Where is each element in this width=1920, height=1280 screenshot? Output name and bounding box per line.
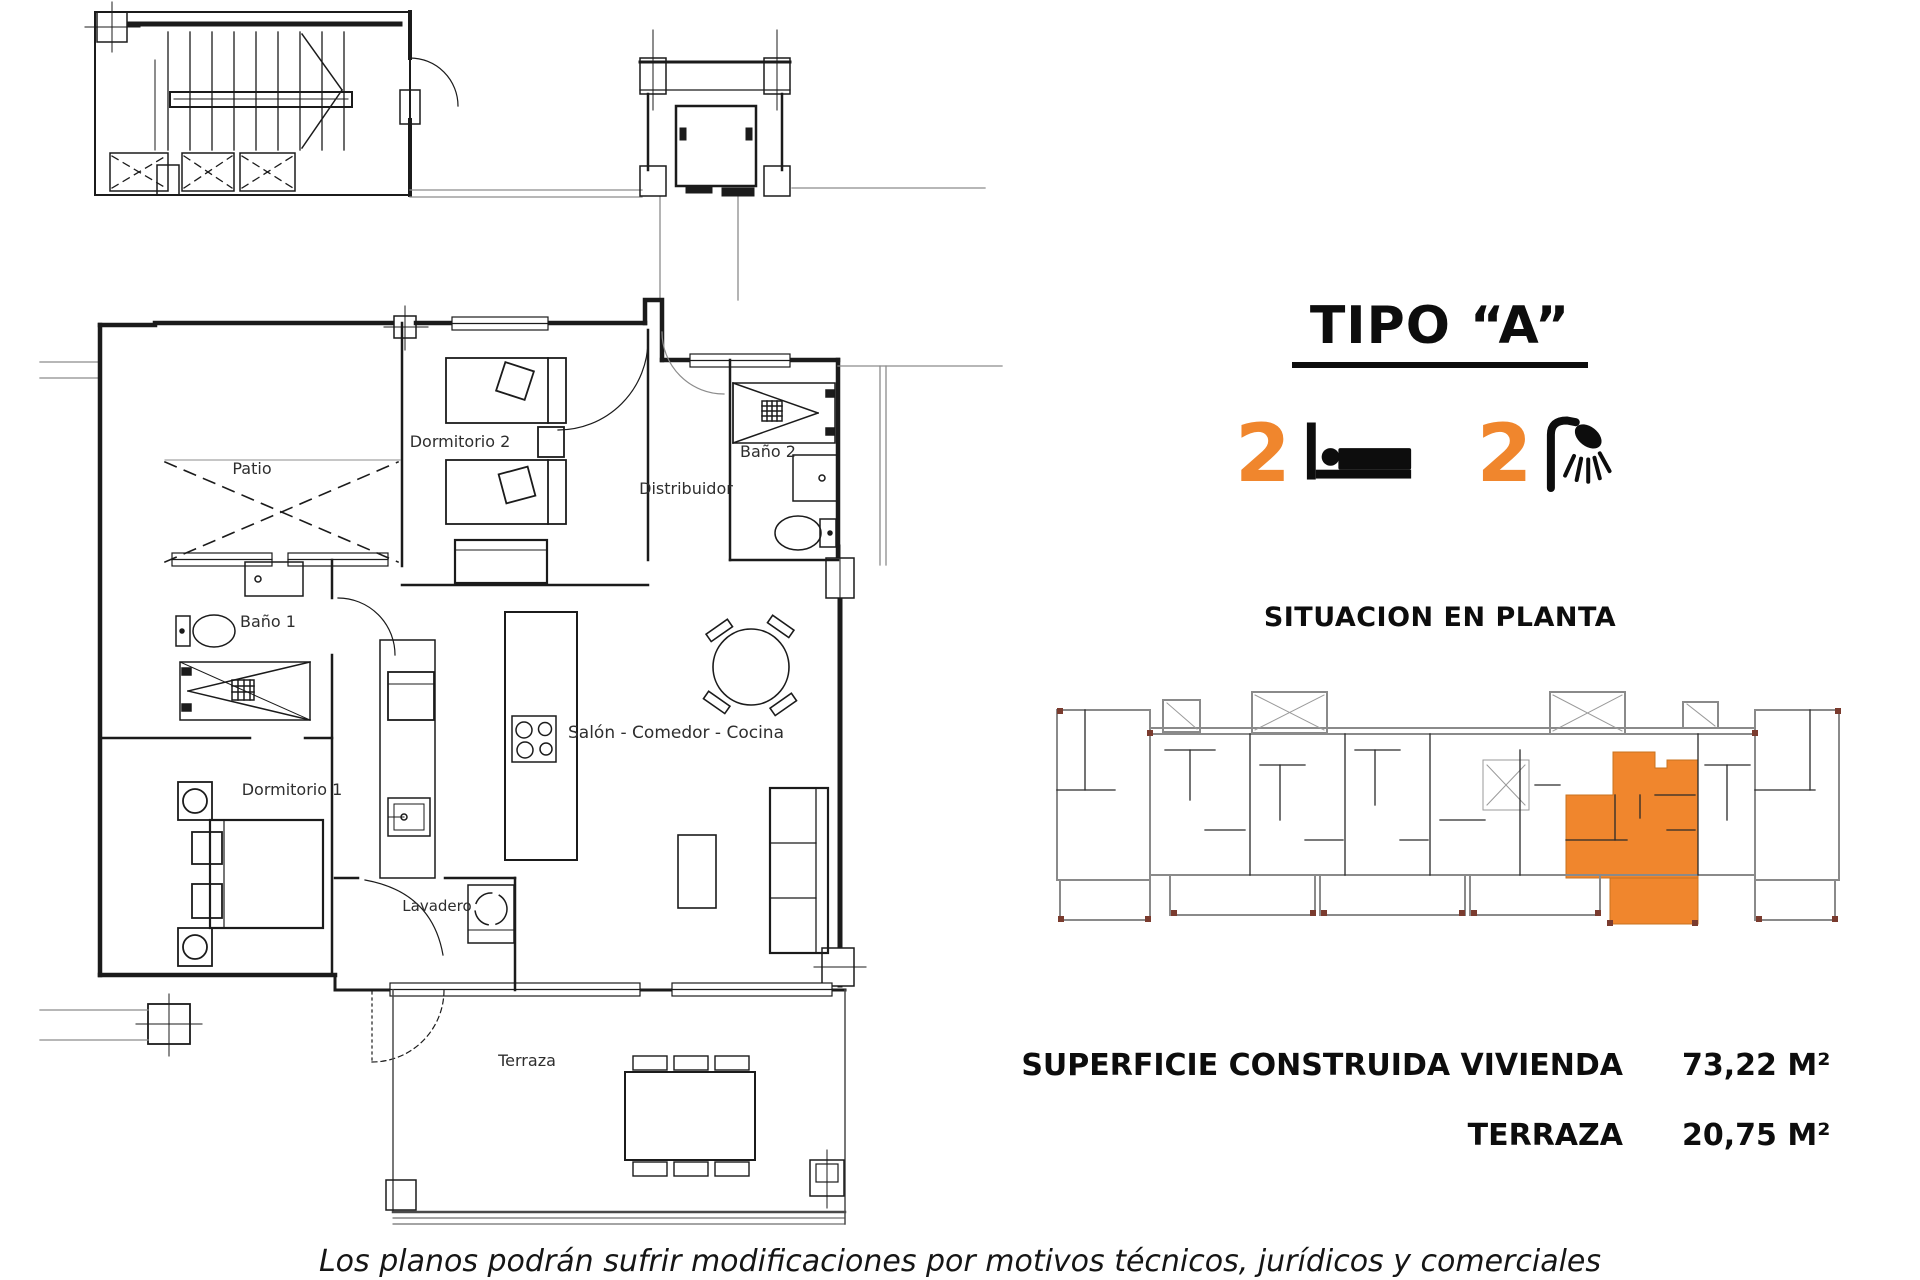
situation-plan	[1055, 690, 1845, 955]
label-bano2: Baño 2	[740, 442, 796, 461]
label-bano1: Baño 1	[240, 612, 296, 631]
bedrooms-stat: 2	[1235, 411, 1419, 497]
bedroom1-furniture	[178, 782, 323, 966]
type-title: TIPO “A”	[1292, 296, 1588, 368]
floor-plan-drawing: Patio Dormitorio 2 Baño 2 Distribuidor B…	[0, 0, 1010, 1240]
surface-built-label: SUPERFICIE CONSTRUIDA VIVIENDA	[1020, 1048, 1623, 1083]
terrace	[40, 990, 845, 1224]
stats-row: 2 2	[1235, 408, 1655, 500]
situation-title: SITUACION EN PLANTA	[1140, 602, 1740, 633]
apartment-walls	[100, 300, 1002, 990]
bathroom2-fixtures	[733, 383, 837, 550]
bathroom1-fixtures	[176, 562, 310, 720]
stairwell-detail	[85, 2, 458, 195]
shower-icon	[1542, 408, 1622, 500]
door-arcs	[338, 332, 724, 1062]
living-furniture	[678, 615, 828, 953]
laundry-fixtures	[468, 885, 514, 943]
building-outline	[1057, 692, 1839, 920]
surface-terrace-value: 20,75 M²	[1682, 1118, 1862, 1153]
bed-icon	[1301, 411, 1419, 497]
bedroom2-furniture	[446, 358, 566, 583]
label-dormitorio2: Dormitorio 2	[410, 432, 511, 451]
surface-built-value: 73,22 M²	[1682, 1048, 1862, 1083]
label-terraza: Terraza	[497, 1051, 556, 1070]
bedrooms-count: 2	[1235, 414, 1291, 494]
label-salon: Salón - Comedor - Cocina	[568, 723, 784, 743]
highlighted-unit	[1566, 752, 1698, 924]
bathrooms-stat: 2	[1477, 408, 1623, 500]
bathrooms-count: 2	[1477, 414, 1533, 494]
label-patio: Patio	[232, 459, 271, 478]
elevator-detail	[640, 30, 790, 196]
label-lavadero: Lavadero	[402, 897, 471, 915]
kitchen-fixtures	[380, 612, 577, 878]
surface-terrace-label: TERRAZA	[1020, 1118, 1623, 1153]
corridor-lines	[40, 188, 985, 378]
label-distribuidor: Distribuidor	[639, 479, 733, 498]
patio-hatch	[165, 462, 398, 562]
column-markers	[1057, 708, 1841, 926]
label-dormitorio1: Dormitorio 1	[242, 780, 343, 799]
disclaimer-text: Los planos podrán sufrir modificaciones …	[0, 1244, 1920, 1279]
